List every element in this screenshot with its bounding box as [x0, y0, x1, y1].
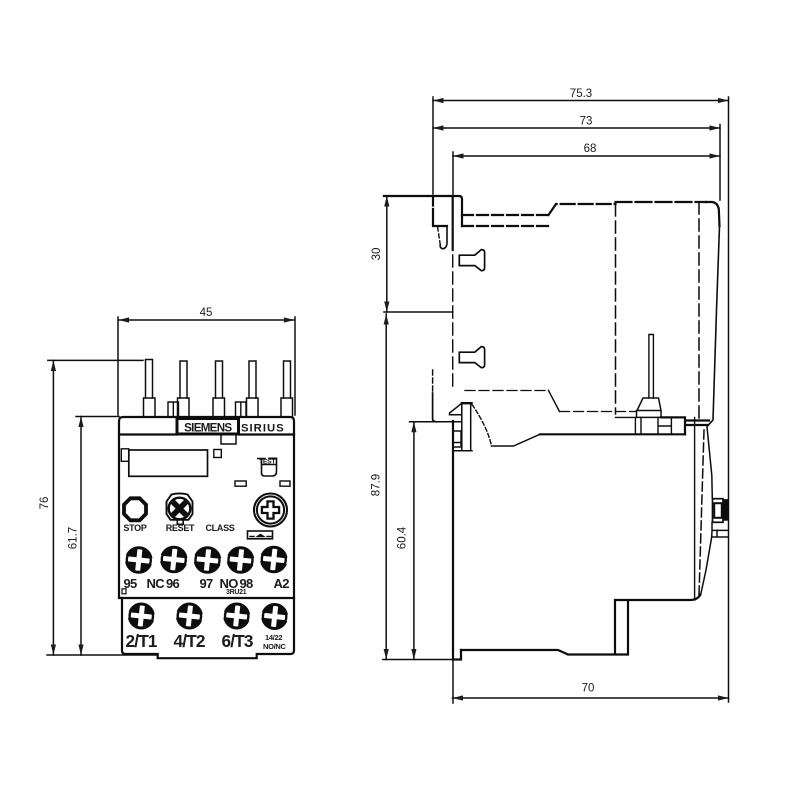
svg-text:A2: A2: [274, 576, 290, 591]
svg-text:45: 45: [200, 307, 213, 319]
svg-text:6/T3: 6/T3: [222, 631, 253, 651]
svg-text:73: 73: [580, 116, 593, 128]
svg-text:70: 70: [582, 683, 595, 695]
svg-text:30: 30: [371, 248, 383, 261]
svg-text:STOP: STOP: [123, 523, 146, 533]
svg-text:75.3: 75.3: [570, 88, 592, 100]
svg-text:68: 68: [584, 143, 597, 155]
svg-text:97: 97: [200, 576, 214, 591]
svg-text:3RU21: 3RU21: [226, 589, 247, 596]
svg-text:NC: NC: [147, 576, 166, 591]
svg-text:RESET: RESET: [166, 523, 195, 533]
svg-text:SIRIUS: SIRIUS: [241, 423, 285, 435]
svg-text:SIEMENS: SIEMENS: [184, 422, 232, 435]
svg-text:61.7: 61.7: [68, 527, 80, 549]
svg-text:76: 76: [39, 497, 51, 510]
svg-text:2/T1: 2/T1: [126, 631, 158, 651]
svg-text:4/T2: 4/T2: [174, 631, 205, 651]
svg-text:NO/NC: NO/NC: [263, 642, 287, 651]
svg-text:87.9: 87.9: [371, 474, 383, 496]
svg-text:60.4: 60.4: [397, 526, 409, 549]
svg-text:14/22: 14/22: [265, 633, 282, 642]
svg-text:96: 96: [166, 576, 180, 591]
svg-text:CLASS: CLASS: [205, 523, 234, 533]
